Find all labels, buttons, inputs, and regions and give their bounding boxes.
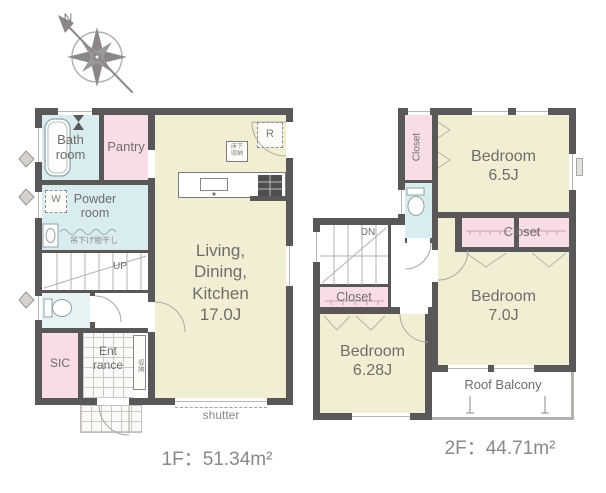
ldk-label: Living, Dining, Kitchen 17.0J [155, 240, 286, 325]
toilet-icon [44, 299, 72, 317]
underfloor-storage-label: 床下 収納 [226, 144, 248, 158]
floor2-area-label: 2F：44.71m² [410, 438, 590, 460]
laundry-pole-label: 吊下げ物干し [58, 236, 130, 245]
pantry-label: Pantry [102, 140, 150, 155]
railing-icons [466, 396, 549, 413]
bedroom-628-label: Bedroom 6.28J [320, 342, 425, 380]
closet-main-label: Closet [472, 225, 572, 240]
faucet-icon [212, 192, 215, 195]
floor1-area-label: 1F：51.34m² [127, 449, 307, 471]
entrance-label: Ent rance [83, 345, 133, 372]
bath-door-icon [73, 115, 84, 130]
bedroom-65-label: Bedroom 6.5J [438, 147, 569, 185]
bathroom-label: Bath room [42, 133, 99, 163]
sink-icon [43, 224, 58, 247]
closet-stairs-label: Closet [320, 290, 388, 304]
fridge-label: R [257, 128, 283, 141]
shutter-label: shutter [175, 409, 267, 423]
laundry-pole-icon [60, 230, 116, 235]
shoe-storage-label: 収納 [136, 345, 143, 385]
compass-north-label: N [58, 12, 78, 26]
compass-rose-icon [58, 15, 132, 92]
stove-icon [258, 175, 282, 196]
bedroom-70-label: Bedroom 7.0J [438, 287, 569, 325]
up-label: UP [105, 261, 135, 272]
floor-plan-canvas: N Bath room Pantry Powder room 吊下げ物干し W … [0, 0, 606, 493]
plan-symbols-layer [0, 0, 606, 493]
toilet-icon [407, 188, 424, 216]
roof-balcony-label: Roof Balcony [438, 378, 568, 393]
closet-side-label: Closet [412, 115, 426, 180]
down-label: DN [353, 227, 383, 238]
washer-label: W [45, 194, 67, 205]
vent-icons [19, 151, 34, 308]
sic-label: SIC [42, 357, 78, 371]
